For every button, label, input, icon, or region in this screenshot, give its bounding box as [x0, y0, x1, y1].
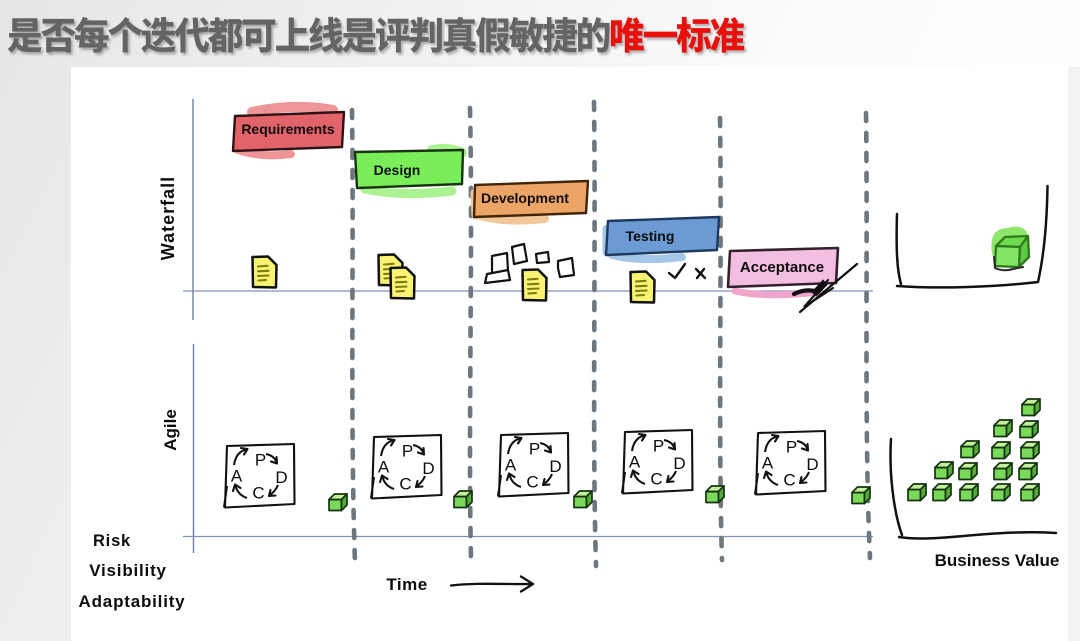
- svg-text:Design: Design: [374, 162, 421, 178]
- svg-text:Business Value: Business Value: [935, 551, 1060, 570]
- svg-text:Requirements: Requirements: [241, 121, 335, 137]
- svg-text:Agile: Agile: [161, 409, 180, 451]
- svg-text:Adaptability: Adaptability: [79, 592, 186, 611]
- svg-text:Waterfall: Waterfall: [158, 176, 178, 260]
- svg-text:Risk: Risk: [93, 532, 131, 550]
- svg-text:Visibility: Visibility: [89, 561, 167, 580]
- svg-text:Development: Development: [481, 190, 569, 206]
- svg-text:Testing: Testing: [626, 228, 675, 244]
- svg-text:Acceptance: Acceptance: [740, 259, 824, 276]
- svg-text:Time: Time: [386, 575, 427, 594]
